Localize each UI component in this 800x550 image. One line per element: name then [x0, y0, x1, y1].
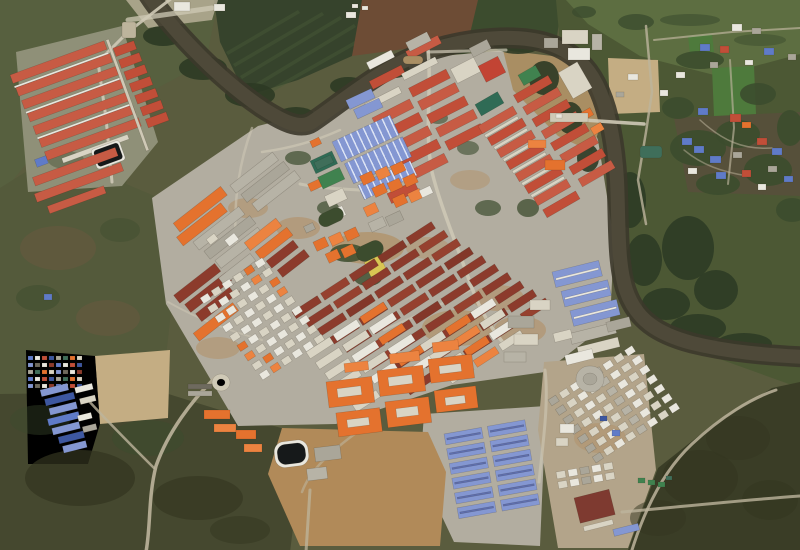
- vegetation-patch: [153, 476, 243, 520]
- satellite-photo: [0, 0, 800, 550]
- structure: [676, 72, 685, 78]
- structure: [764, 48, 774, 55]
- structure: [716, 172, 726, 179]
- screenshot-root: [0, 0, 800, 550]
- vegetation-patch: [285, 151, 311, 165]
- structure: [42, 363, 47, 367]
- structure: [648, 480, 655, 485]
- structure: [204, 410, 230, 419]
- structure: [306, 467, 327, 481]
- structure: [603, 462, 613, 470]
- structure: [612, 430, 620, 436]
- structure: [581, 476, 591, 484]
- structure: [35, 363, 40, 367]
- vegetation-patch: [16, 285, 60, 311]
- structure: [28, 384, 33, 388]
- structure: [42, 370, 47, 374]
- structure: [217, 379, 225, 386]
- structure: [35, 370, 40, 374]
- structure: [514, 334, 538, 345]
- structure: [44, 294, 52, 300]
- structure: [70, 363, 75, 367]
- structure: [508, 316, 534, 328]
- structure: [580, 466, 590, 474]
- vegetation-patch: [662, 97, 694, 119]
- structure: [745, 60, 753, 65]
- structure: [757, 138, 767, 145]
- structure: [352, 4, 358, 8]
- structure: [600, 416, 607, 421]
- structure: [730, 114, 741, 122]
- structure: [583, 373, 597, 385]
- structure: [504, 352, 526, 362]
- structure: [752, 28, 761, 34]
- structure: [244, 444, 262, 452]
- structure: [314, 445, 342, 462]
- structure: [346, 12, 356, 18]
- structure: [562, 30, 588, 44]
- structure: [403, 56, 423, 64]
- structure: [593, 474, 603, 482]
- structure: [236, 430, 256, 439]
- structure: [28, 377, 33, 381]
- structure: [560, 424, 574, 433]
- structure: [77, 377, 82, 381]
- vegetation-patch: [618, 14, 654, 30]
- structure: [658, 482, 665, 487]
- structure: [188, 391, 212, 396]
- structure: [640, 146, 662, 158]
- structure: [710, 156, 721, 163]
- structure: [556, 114, 562, 118]
- structure: [638, 478, 645, 483]
- vegetation-patch: [662, 216, 714, 280]
- structure: [605, 472, 615, 480]
- structure: [362, 6, 368, 10]
- vegetation-patch: [740, 83, 776, 105]
- structure: [35, 356, 40, 360]
- structure: [568, 48, 590, 60]
- structure: [591, 464, 601, 472]
- vegetation-patch: [450, 170, 490, 190]
- structure: [56, 370, 61, 374]
- structure: [592, 34, 602, 50]
- structure: [77, 363, 82, 367]
- structure: [174, 2, 190, 11]
- structure: [666, 476, 672, 480]
- vegetation-patch: [210, 516, 270, 544]
- structure: [214, 424, 236, 432]
- structure: [49, 356, 54, 360]
- structure: [122, 22, 136, 38]
- structure: [550, 113, 588, 122]
- vegetation-patch: [475, 200, 501, 216]
- structure: [528, 140, 546, 148]
- structure: [758, 184, 766, 190]
- structure: [49, 363, 54, 367]
- structure: [276, 442, 306, 465]
- structure: [682, 138, 692, 145]
- structure: [214, 4, 225, 11]
- structure: [568, 468, 578, 476]
- structure: [63, 363, 68, 367]
- structure: [788, 54, 796, 60]
- structure: [742, 122, 751, 128]
- structure: [63, 370, 68, 374]
- structure: [28, 370, 33, 374]
- structure: [698, 108, 708, 115]
- structure: [772, 148, 782, 155]
- structure: [556, 470, 566, 478]
- structure: [694, 146, 704, 153]
- structure: [784, 176, 793, 182]
- structure: [77, 370, 82, 374]
- structure: [616, 92, 624, 97]
- structure: [768, 166, 777, 172]
- structure: [70, 370, 75, 374]
- structure: [742, 170, 751, 177]
- vegetation-patch: [734, 34, 786, 46]
- structure: [63, 356, 68, 360]
- structure: [660, 90, 668, 96]
- structure: [70, 377, 75, 381]
- structure: [28, 356, 33, 360]
- vegetation-patch: [100, 218, 140, 242]
- vegetation-patch: [572, 6, 596, 18]
- vegetation-patch: [76, 300, 140, 336]
- structure: [545, 160, 565, 170]
- structure: [544, 38, 558, 48]
- structure: [49, 377, 54, 381]
- structure: [70, 356, 75, 360]
- structure: [570, 478, 580, 486]
- structure: [556, 438, 568, 446]
- sand-patch: [95, 350, 170, 424]
- structure: [35, 384, 40, 388]
- structure: [688, 168, 697, 174]
- structure: [700, 44, 710, 51]
- structure: [188, 384, 212, 389]
- vegetation-patch: [660, 14, 720, 26]
- structure: [56, 356, 61, 360]
- structure: [42, 377, 47, 381]
- structure: [35, 377, 40, 381]
- structure: [628, 74, 638, 80]
- structure: [56, 363, 61, 367]
- structure: [56, 377, 61, 381]
- structure: [63, 377, 68, 381]
- structure: [42, 384, 47, 388]
- structure: [28, 363, 33, 367]
- structure: [732, 24, 742, 31]
- structure: [558, 480, 568, 488]
- vegetation-patch: [20, 226, 96, 270]
- structure: [530, 300, 550, 310]
- structure: [77, 356, 82, 360]
- structure: [733, 152, 742, 158]
- structure: [42, 356, 47, 360]
- structure: [49, 370, 54, 374]
- road: [428, 50, 506, 52]
- vegetation-patch: [25, 450, 135, 506]
- vegetation-patch: [694, 270, 738, 310]
- structure: [720, 46, 729, 53]
- structure: [710, 62, 718, 68]
